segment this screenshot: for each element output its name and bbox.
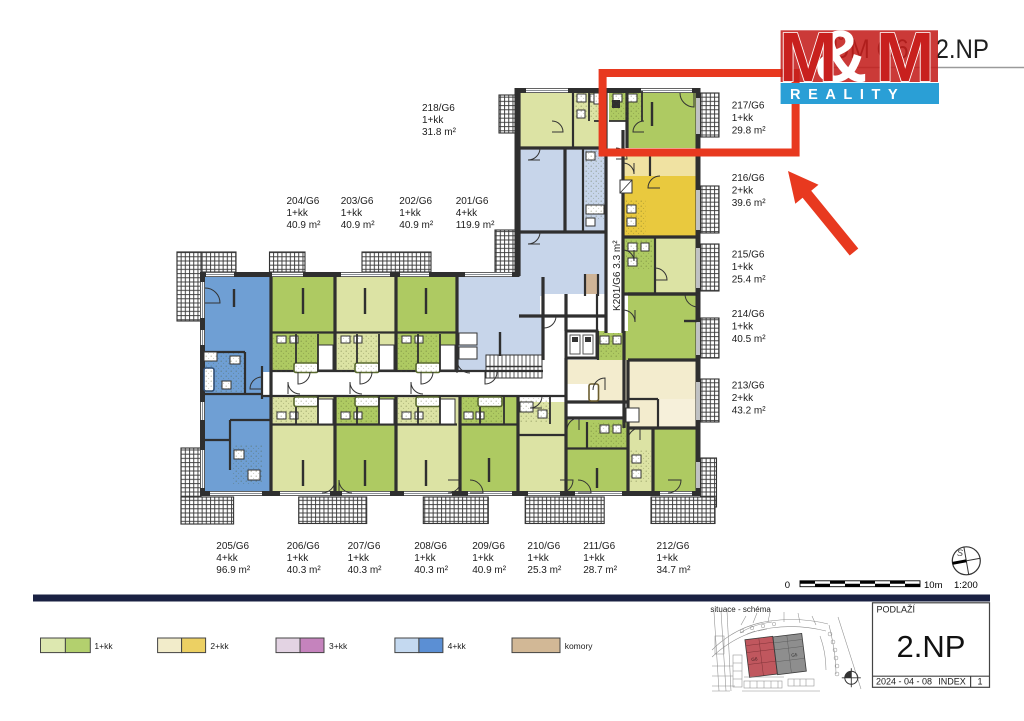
svg-text:PODLAŽÍ: PODLAŽÍ [877,605,916,615]
svg-text:K201/G6 3.3 m²: K201/G6 3.3 m² [612,240,623,311]
svg-text:situace - schéma: situace - schéma [710,605,771,614]
svg-text:1: 1 [977,676,982,686]
svg-text:REALITY: REALITY [790,87,905,103]
svg-text:2+kk: 2+kk [210,641,229,651]
svg-text:1+kk: 1+kk [94,641,113,651]
svg-text:1:200: 1:200 [954,580,978,591]
svg-text:0: 0 [785,580,790,591]
svg-text:3+kk: 3+kk [329,641,348,651]
svg-text:2024 - 04 - 08: 2024 - 04 - 08 [876,676,932,686]
svg-text:G6: G6 [751,656,758,662]
svg-text:10m: 10m [924,580,943,591]
svg-text:INDEX: INDEX [938,676,966,686]
svg-text:G5: G5 [791,652,798,658]
svg-text:4+kk: 4+kk [448,641,467,651]
svg-text:S: S [957,548,963,558]
svg-text:2.NP: 2.NP [897,629,966,664]
svg-text:komory: komory [565,641,594,651]
